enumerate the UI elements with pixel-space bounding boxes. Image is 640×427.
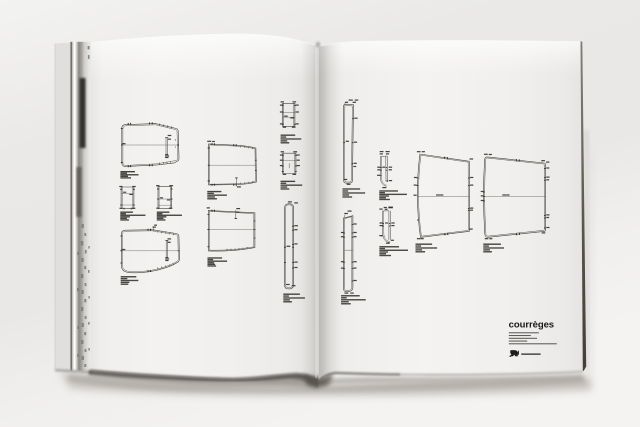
svg-text:courrèges: courrèges xyxy=(509,320,554,331)
